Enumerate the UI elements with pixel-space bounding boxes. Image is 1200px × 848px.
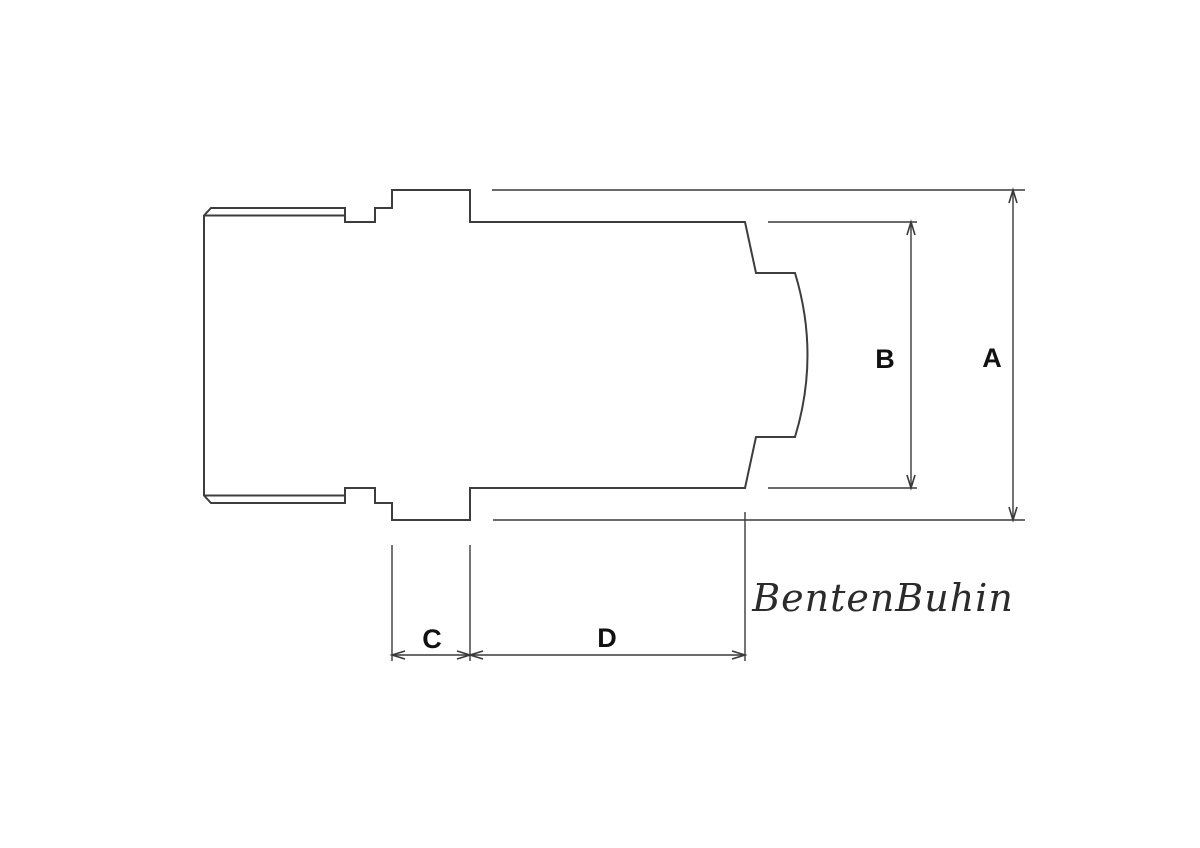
dimension-label-d: D xyxy=(597,623,617,653)
dimension-label-a: A xyxy=(982,343,1002,373)
drawing-canvas: A B C D BentenBuhin xyxy=(0,0,1200,848)
part-outline xyxy=(204,190,808,520)
dimension-label-b: B xyxy=(875,344,895,374)
technical-drawing: A B C D BentenBuhin xyxy=(0,0,1200,848)
dimension-label-c: C xyxy=(422,624,442,654)
watermark-logo: BentenBuhin xyxy=(751,576,1014,620)
